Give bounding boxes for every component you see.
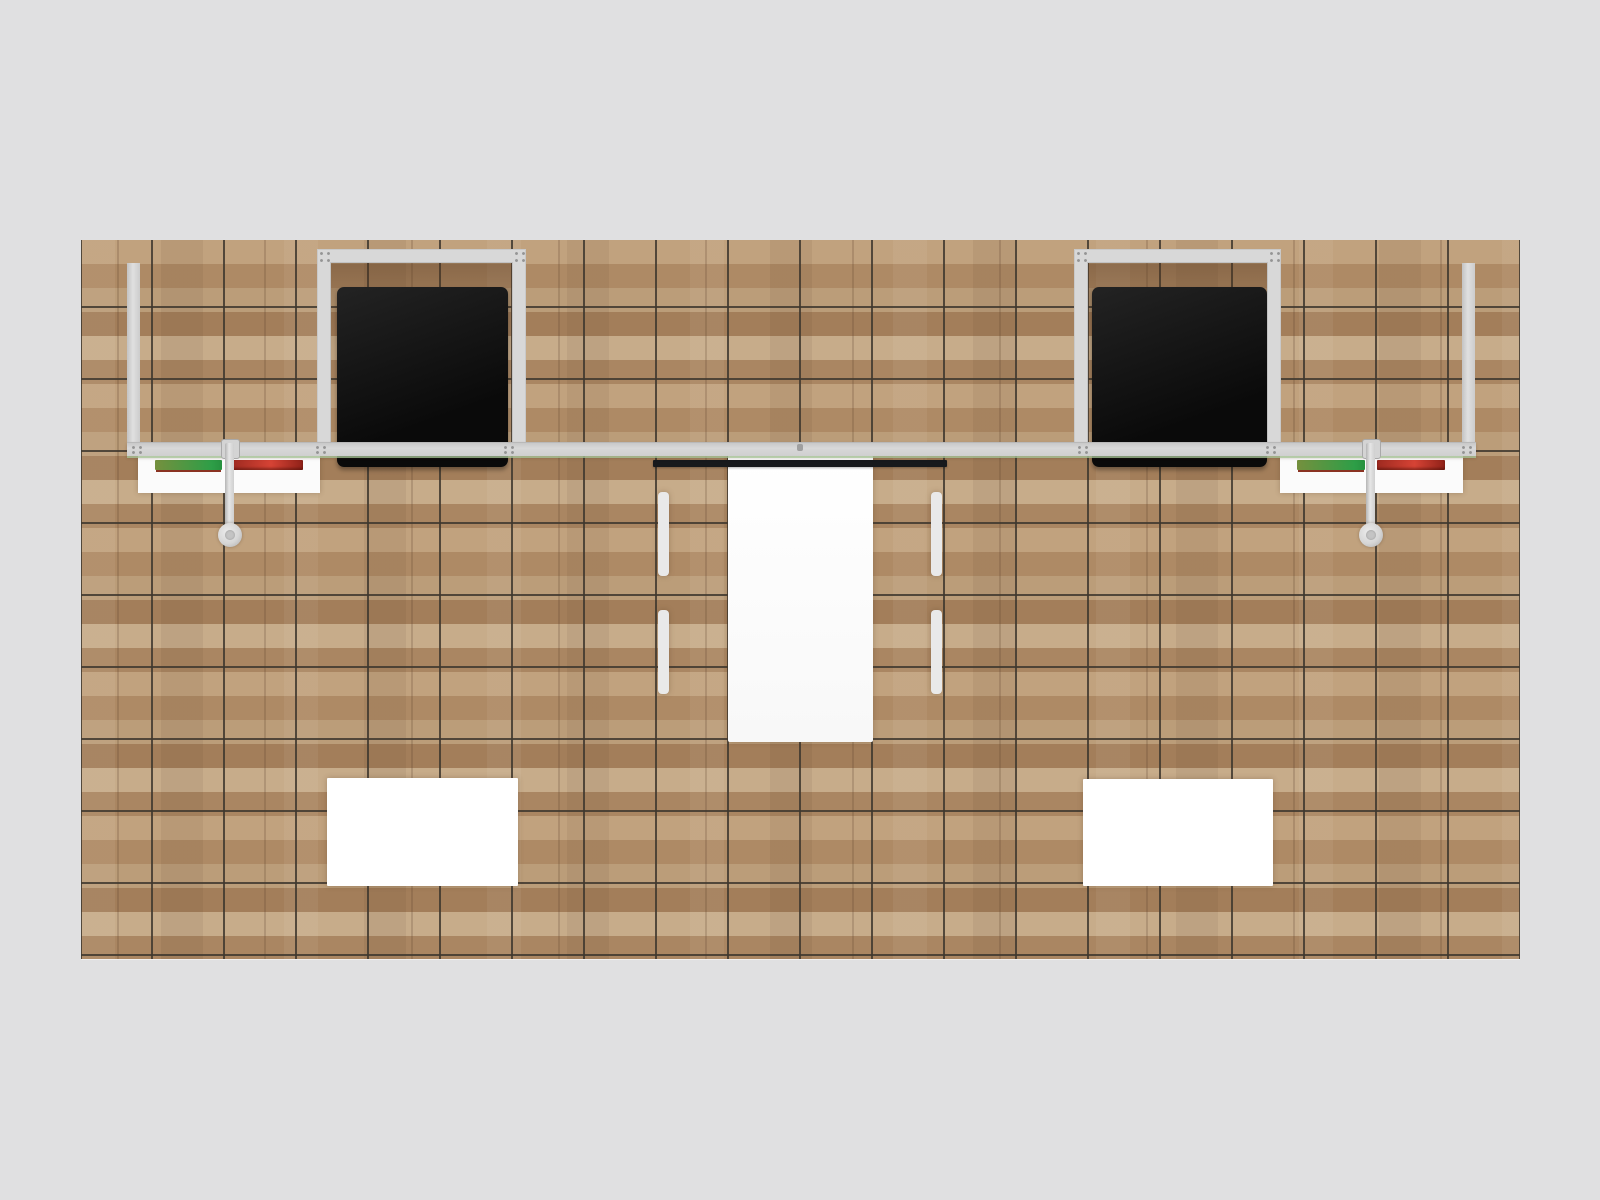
chair-backrest [658, 492, 669, 576]
beam-bolts [313, 444, 327, 455]
right-green-literature-strip [1297, 460, 1365, 470]
chair-backrest [931, 492, 942, 576]
left-monitor-frame [318, 250, 525, 455]
chair-top-right [872, 490, 942, 578]
left-sidewall-panel [127, 263, 140, 443]
beam-bolts [1459, 444, 1473, 455]
frame-corner-bolts [1267, 249, 1281, 263]
beam-bolts [501, 444, 515, 455]
chair-bottom-left [658, 608, 728, 696]
left-stand-base [218, 523, 242, 547]
chair-backrest [931, 610, 942, 694]
center-header-bar [653, 460, 947, 467]
beam-bolts [129, 444, 143, 455]
wood-floor [81, 240, 1520, 959]
right-stand-base [1359, 523, 1383, 547]
beam-connector [797, 444, 803, 451]
chair-bottom-right [872, 608, 942, 696]
frame-corner-bolts [512, 249, 526, 263]
right-red-literature-strip [1377, 460, 1445, 470]
booth-render [0, 0, 1600, 1200]
left-green-literature-strip [155, 460, 222, 470]
left-floor-pedestal [327, 778, 518, 886]
right-floor-pedestal [1083, 779, 1273, 886]
frame-corner-bolts [317, 249, 331, 263]
beam-bolts [1263, 444, 1277, 455]
beam-bolts [1075, 444, 1089, 455]
right-monitor-frame [1075, 250, 1280, 455]
chair-backrest [658, 610, 669, 694]
left-red-literature-strip [232, 460, 303, 470]
meeting-table [728, 455, 873, 742]
frame-corner-bolts [1074, 249, 1088, 263]
chair-top-left [658, 490, 728, 578]
right-sidewall-panel [1462, 263, 1475, 443]
